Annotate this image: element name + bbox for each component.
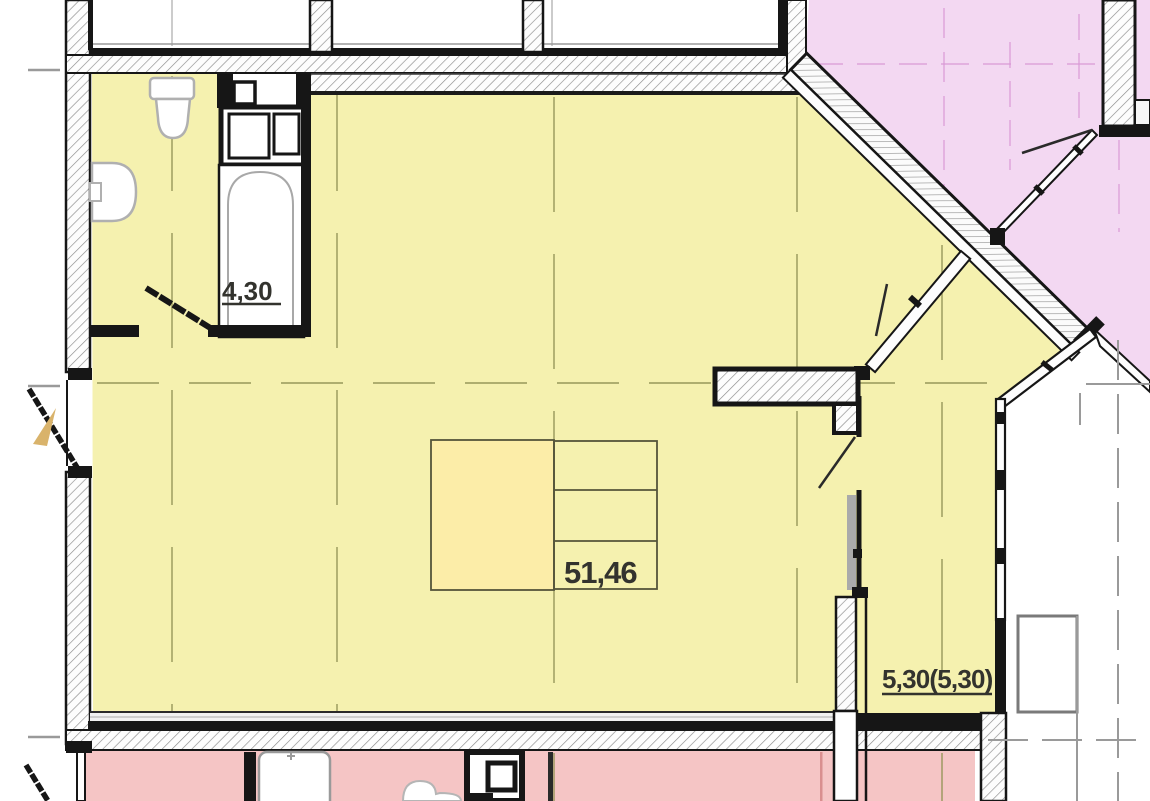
svg-text:51,46: 51,46 — [564, 555, 637, 590]
svg-text:5,30(5,30): 5,30(5,30) — [882, 664, 993, 694]
svg-text:4,30: 4,30 — [222, 276, 273, 306]
